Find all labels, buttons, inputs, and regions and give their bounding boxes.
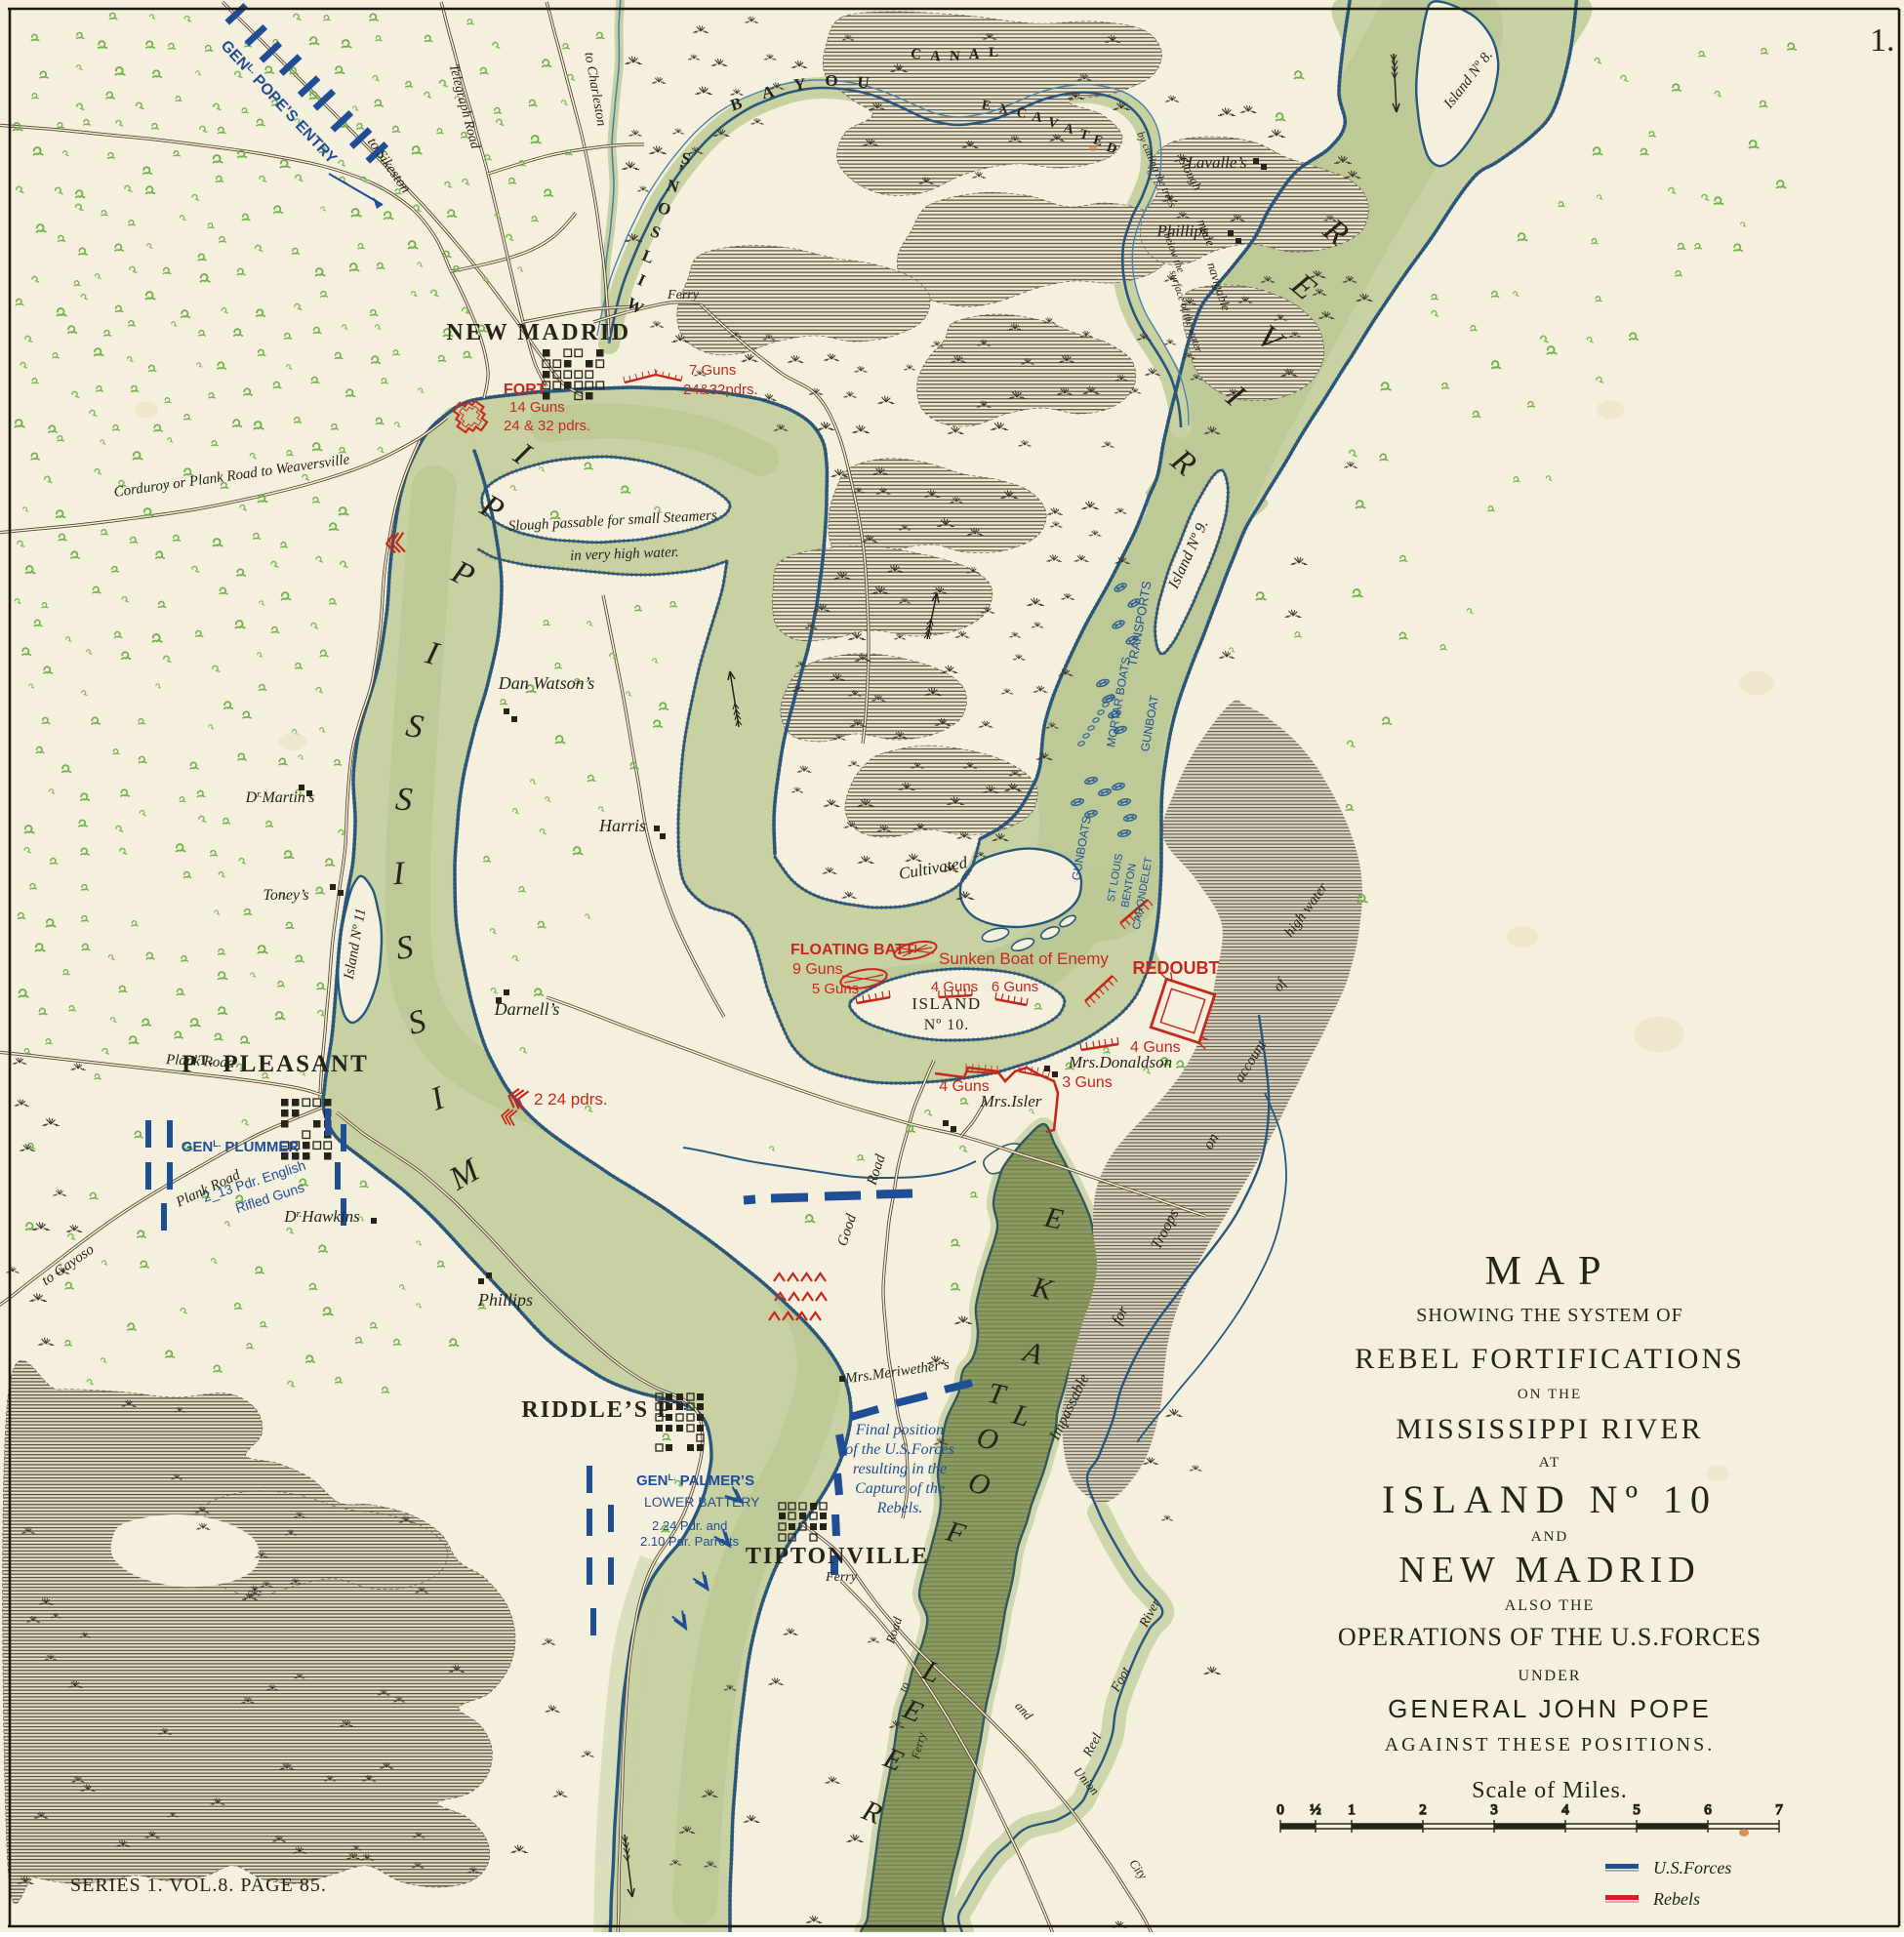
svg-text:U.S.Forces: U.S.Forces (1653, 1858, 1731, 1877)
svg-text:ON THE: ON THE (1518, 1387, 1582, 1402)
svg-text:0: 0 (1276, 1802, 1284, 1818)
svg-text:S: S (394, 781, 414, 818)
svg-text:ISLAND Nº 10: ISLAND Nº 10 (1382, 1477, 1718, 1521)
svg-text:resulting in the: resulting in the (853, 1461, 947, 1477)
svg-text:SHOWING THE SYSTEM OF: SHOWING THE SYSTEM OF (1416, 1305, 1682, 1326)
svg-text:Final position: Final position (855, 1422, 944, 1438)
svg-text:MAP: MAP (1484, 1249, 1614, 1294)
svg-text:Rebels: Rebels (1652, 1889, 1700, 1909)
svg-text:24&32pdrs.: 24&32pdrs. (683, 382, 758, 398)
svg-text:L: L (989, 45, 998, 61)
svg-text:AT: AT (1539, 1455, 1560, 1471)
svg-text:ALSO THE: ALSO THE (1505, 1597, 1596, 1614)
svg-text:2.24 Pdr. and: 2.24 Pdr. and (652, 1518, 727, 1533)
svg-text:24 & 32 pdrs.: 24 & 32 pdrs. (504, 418, 590, 434)
svg-text:AGAINST THESE POSITIONS.: AGAINST THESE POSITIONS. (1385, 1734, 1716, 1755)
svg-text:U: U (856, 72, 870, 92)
svg-text:2.10 Pdr. Parrotts: 2.10 Pdr. Parrotts (640, 1534, 740, 1549)
svg-text:Phillips: Phillips (477, 1290, 533, 1310)
svg-text:NEW MADRID: NEW MADRID (446, 320, 630, 345)
svg-text:UNDER: UNDER (1518, 1668, 1581, 1684)
svg-text:Dan Watson’s: Dan Watson’s (498, 673, 595, 693)
svg-text:Capture of the: Capture of the (855, 1480, 945, 1497)
svg-text:Scale of Miles.: Scale of Miles. (1472, 1778, 1628, 1803)
svg-text:4: 4 (1561, 1802, 1569, 1818)
svg-text:RIDDLE’S PT.: RIDDLE’S PT. (521, 1397, 688, 1423)
svg-text:Harris: Harris (598, 816, 646, 835)
svg-text:5 Guns: 5 Guns (812, 981, 859, 997)
svg-text:Sunken Boat of Enemy: Sunken Boat of Enemy (939, 949, 1109, 968)
svg-text:TIPTONVILLE: TIPTONVILLE (746, 1544, 929, 1569)
svg-text:ISLAND: ISLAND (911, 994, 981, 1013)
svg-text:Toney’s: Toney’s (263, 887, 308, 904)
svg-text:Darnell’s: Darnell’s (494, 999, 560, 1019)
svg-text:6 Guns: 6 Guns (992, 979, 1038, 995)
svg-text:of the U.S.Forces: of the U.S.Forces (845, 1441, 953, 1458)
svg-text:1: 1 (1348, 1802, 1356, 1818)
svg-text:4 Guns: 4 Guns (939, 1078, 990, 1095)
svg-text:Ferry: Ferry (667, 288, 700, 303)
svg-text:GENL. PLUMMER: GENL. PLUMMER (182, 1139, 300, 1155)
svg-text:2: 2 (1419, 1802, 1427, 1818)
svg-text:FLOATING BATTʲ: FLOATING BATTʲ (790, 942, 917, 958)
svg-text:5: 5 (1633, 1802, 1641, 1818)
svg-text:14 Guns: 14 Guns (509, 399, 565, 416)
svg-text:GENL. PALMER’S: GENL. PALMER’S (636, 1473, 754, 1489)
svg-text:½: ½ (1310, 1802, 1320, 1818)
svg-text:3 Guns: 3 Guns (1062, 1074, 1113, 1091)
svg-text:9 Guns: 9 Guns (792, 961, 843, 978)
svg-text:Nº 10.: Nº 10. (924, 1017, 970, 1033)
svg-text:C: C (910, 46, 922, 62)
svg-text:Dr.Martin’s: Dr.Martin’s (245, 789, 315, 806)
svg-text:LOWER BATTERY: LOWER BATTERY (644, 1494, 760, 1510)
svg-text:Dr.Hawkins: Dr.Hawkins (283, 1207, 360, 1226)
svg-text:3: 3 (1490, 1802, 1498, 1818)
svg-text:OPERATIONS OF THE U.S.FORCES: OPERATIONS OF THE U.S.FORCES (1338, 1623, 1762, 1651)
svg-text:REBEL FORTIFICATIONS: REBEL FORTIFICATIONS (1355, 1343, 1745, 1375)
svg-text:MISSISSIPPI RIVER: MISSISSIPPI RIVER (1396, 1413, 1703, 1445)
svg-text:7: 7 (1775, 1802, 1783, 1818)
svg-text:NEW MADRID: NEW MADRID (1398, 1550, 1700, 1591)
svg-text:7 Guns: 7 Guns (689, 362, 736, 379)
svg-text:Y: Y (792, 74, 806, 94)
svg-text:4 Guns: 4 Guns (1130, 1039, 1181, 1056)
svg-text:SERIES 1. VOL.8. PAGE 85.: SERIES 1. VOL.8. PAGE 85. (70, 1875, 327, 1896)
svg-text:AND: AND (1531, 1529, 1569, 1545)
svg-text:O: O (825, 71, 837, 90)
svg-text:4 Guns: 4 Guns (931, 979, 978, 995)
svg-text:1.: 1. (1870, 22, 1895, 59)
svg-text:N: N (949, 49, 960, 65)
svg-text:A: A (929, 48, 942, 64)
svg-text:REDOUBT: REDOUBT (1133, 958, 1220, 978)
svg-text:2 24 pdrs.: 2 24 pdrs. (534, 1090, 608, 1109)
svg-text:FORT: FORT (504, 382, 547, 398)
svg-text:A: A (968, 47, 980, 62)
svg-text:6: 6 (1704, 1802, 1712, 1818)
svg-text:Rebels.: Rebels. (876, 1500, 923, 1516)
svg-text:GENERAL JOHN POPE: GENERAL JOHN POPE (1388, 1694, 1712, 1723)
svg-text:Ferry: Ferry (825, 1570, 858, 1585)
